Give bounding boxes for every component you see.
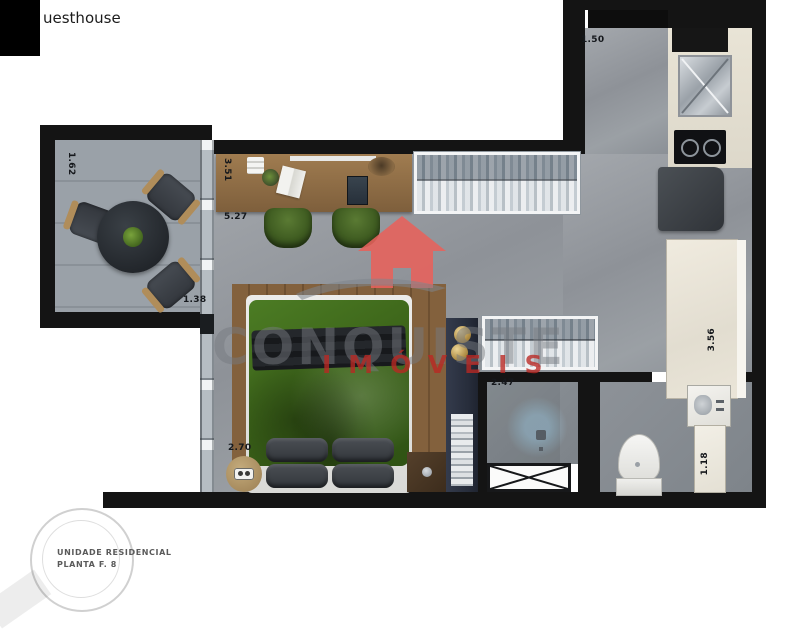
pillow — [266, 464, 328, 488]
nightstand — [407, 452, 447, 492]
wall-balcony-bottom — [40, 312, 212, 328]
dim-closet-area: 2.47 — [491, 379, 514, 388]
dim-kitchen-counter: 3.56 — [708, 328, 717, 351]
vanity-sink — [694, 395, 712, 415]
dim-entry: 1.50 — [581, 36, 604, 45]
table-plant — [123, 227, 143, 247]
pillow — [332, 464, 394, 488]
toilet — [616, 434, 660, 494]
wall-top-entry — [563, 0, 766, 10]
watermark-subbrand: IMÓVEIS — [322, 350, 560, 379]
entry-doormat — [588, 10, 668, 28]
kitchen-black-counter — [672, 28, 728, 52]
vanity-faucet — [716, 400, 724, 403]
desk-bowl — [368, 157, 395, 176]
ottoman — [226, 456, 262, 492]
pillow — [332, 438, 394, 462]
icon-dot — [238, 471, 243, 476]
pillow — [266, 438, 328, 462]
wall-bottom — [103, 492, 766, 508]
dim-balcony-width: 1.62 — [66, 152, 75, 175]
desk-shelf — [290, 156, 376, 161]
entry-corridor-floor — [585, 28, 668, 154]
desk-plant — [262, 169, 279, 186]
toilet-button — [635, 462, 640, 467]
bathroom-vanity — [688, 386, 730, 426]
stamp-circle-inner — [42, 520, 120, 598]
burner — [681, 139, 699, 157]
toilet-tank — [616, 478, 662, 496]
dim-room-length: 5.27 — [224, 213, 247, 222]
wall-balcony-top — [40, 125, 212, 140]
wardrobe-top — [414, 152, 580, 214]
wall-entry-band — [668, 10, 752, 28]
dim-bed-width: 2.70 — [228, 444, 251, 453]
kitchen-sink — [678, 55, 732, 117]
icon-dot — [245, 471, 250, 476]
refrigerator — [658, 167, 724, 231]
nightstand-knob — [422, 467, 432, 477]
page-title: uesthouse — [43, 9, 121, 27]
toilet-bowl — [618, 434, 660, 482]
burner — [703, 139, 721, 157]
dim-balcony-depth: 1.38 — [183, 296, 206, 305]
stamp-line2: PLANTA F. 8 — [57, 561, 117, 569]
watermark-swoosh — [296, 272, 448, 302]
counter-highlight — [737, 240, 746, 398]
wall-entry-left — [563, 0, 585, 154]
stamp-line1: UNIDADE RESIDENCIAL — [57, 549, 172, 557]
shower-drain — [536, 430, 546, 440]
floorplan-page: uesthouse — [0, 0, 800, 600]
clothes-shade — [417, 155, 577, 211]
header-logo-block — [0, 0, 40, 56]
vanity-faucet — [716, 408, 724, 411]
book-stack — [451, 414, 473, 486]
tablet — [347, 176, 368, 205]
wall-right — [752, 0, 766, 506]
wall-balcony-left — [40, 125, 55, 328]
ottoman-icon — [234, 468, 254, 480]
cooktop — [674, 130, 726, 164]
dim-bath-counter: 1.18 — [701, 452, 710, 475]
dim-desk-wall: 3.51 — [222, 158, 231, 181]
desk-papers — [247, 157, 264, 174]
wall-shower-bath — [578, 382, 600, 492]
desk-chair — [264, 208, 312, 248]
wall-shower-left — [478, 378, 487, 492]
shaft-box — [487, 463, 571, 492]
kitchen-counter-lower — [667, 240, 737, 398]
closet-rail — [417, 179, 577, 181]
